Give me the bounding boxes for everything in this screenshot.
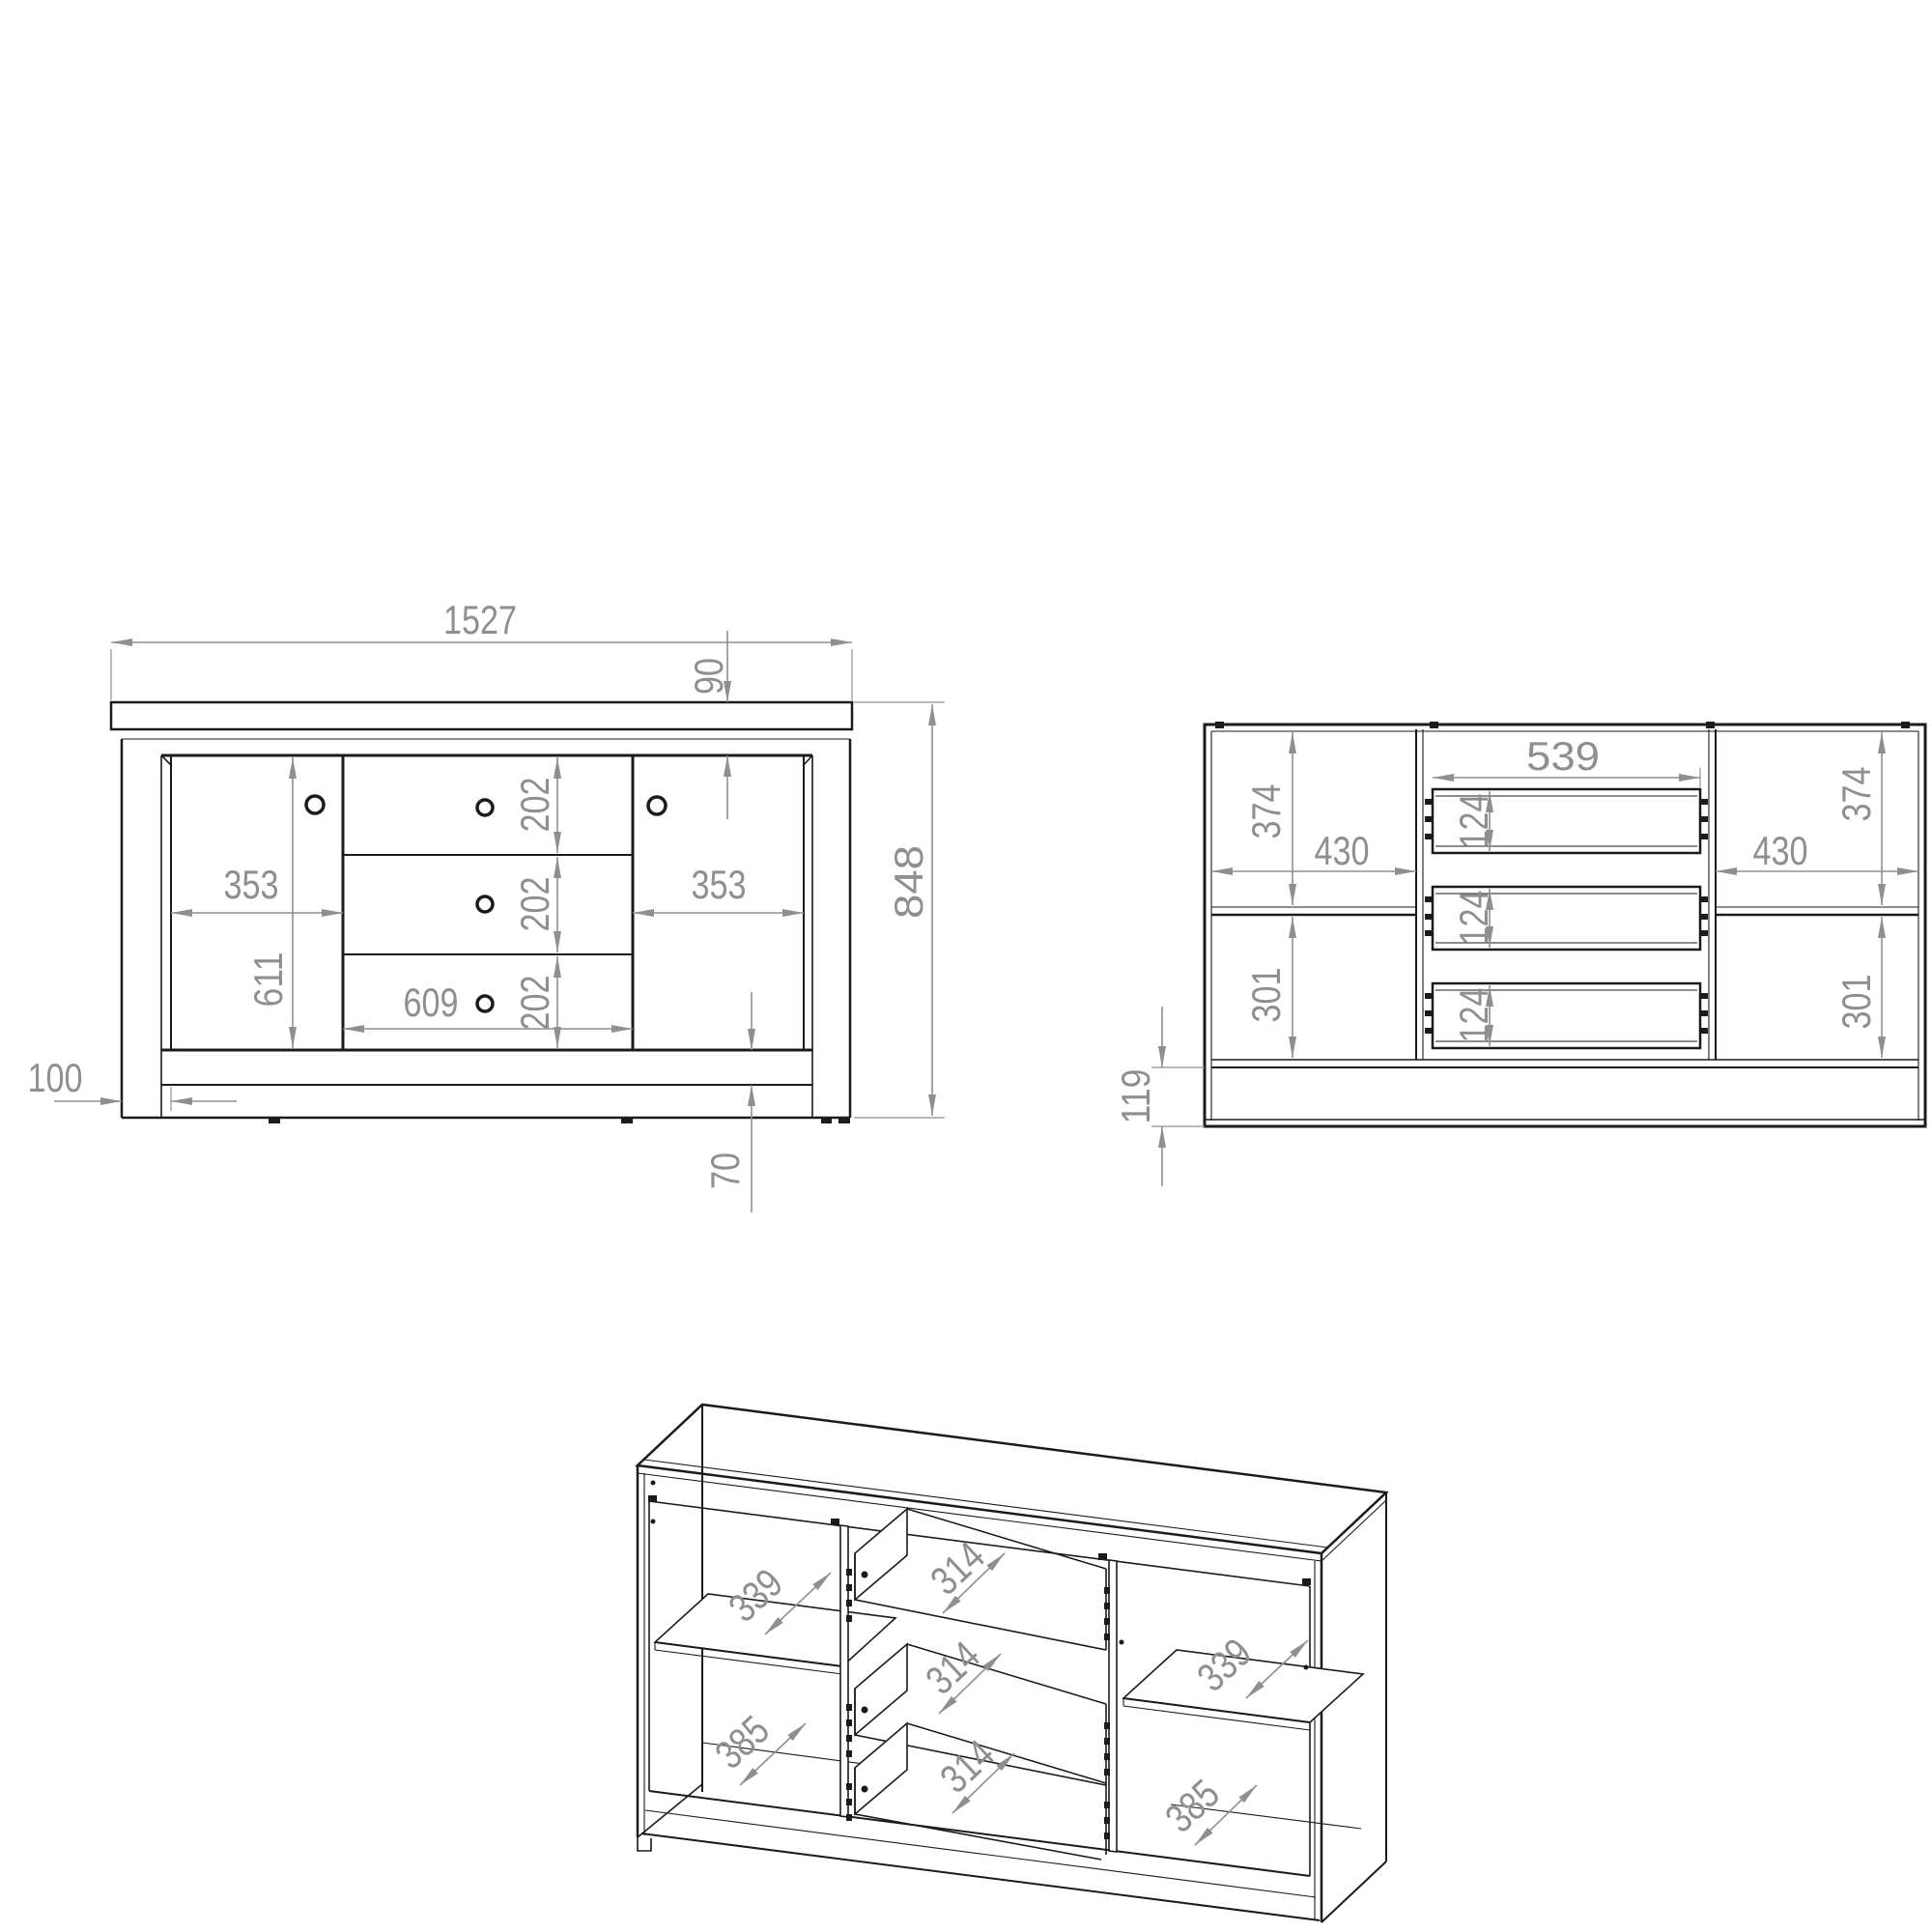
front-knobs — [306, 796, 666, 1011]
iso-plinth-line — [645, 1810, 1316, 1897]
dim-front-door-height: 611 — [245, 952, 291, 1008]
internal-plinth-extensions — [1151, 1067, 1205, 1126]
dim-internal-drawer1-height: 124 — [1451, 794, 1496, 849]
dim-front-drawer2-height: 202 — [512, 877, 557, 932]
right-door-knob — [648, 797, 666, 814]
front-carcass-sides — [122, 739, 850, 1118]
iso-drawer2-dot — [862, 1707, 868, 1714]
front-top-panel — [111, 702, 852, 729]
internal-view: 539 124 124 124 374 430 301 374 430 301 … — [1113, 722, 1925, 1186]
dim-front-drawer1-height: 202 — [512, 778, 557, 833]
drawer1-knob — [477, 800, 493, 815]
front-view: 1527 90 202 202 202 353 353 611 609 848 … — [28, 597, 946, 1212]
dim-front-top-panel: 90 — [686, 658, 731, 695]
dim-internal-drawer3-height: 124 — [1451, 988, 1496, 1043]
dim-iso-drawer2-depth: 314 — [917, 1633, 988, 1703]
dim-iso-right-bottom-depth: 385 — [1156, 1771, 1228, 1841]
dim-front-total-height: 848 — [886, 845, 931, 919]
iso-drawer2-sidewall — [855, 1644, 907, 1735]
iso-drawer1-dot — [862, 1572, 868, 1578]
iso-drawer1-sidewall — [855, 1509, 907, 1600]
dim-internal-plinth-height: 119 — [1113, 1069, 1158, 1124]
dim-front-drawer-width: 609 — [404, 980, 459, 1025]
iso-dimensions: 339 385 314 314 314 339 385 — [706, 1533, 1308, 1845]
drawer3-knob — [477, 996, 493, 1011]
dim-internal-drawer2-height: 124 — [1451, 891, 1496, 946]
dim-front-total-width: 1527 — [443, 597, 517, 642]
dim-front-side-width: 100 — [28, 1055, 83, 1100]
furniture-technical-drawing: 1527 90 202 202 202 353 353 611 609 848 … — [0, 0, 1932, 1932]
dim-iso-left-bottom-depth: 385 — [706, 1707, 778, 1777]
dim-front-left-door-width: 353 — [224, 862, 279, 907]
iso-top-face — [638, 1405, 1386, 1553]
dim-internal-right-bottom-height: 301 — [1833, 975, 1879, 1030]
drawer2-knob — [477, 896, 493, 912]
iso-drawer3-dot — [862, 1786, 868, 1793]
iso-view: 339 385 314 314 314 339 385 — [638, 1405, 1386, 1922]
dim-internal-right-top-height: 374 — [1833, 767, 1879, 822]
dim-front-drawer3-height: 202 — [512, 976, 557, 1031]
dim-internal-right-width: 430 — [1753, 828, 1808, 873]
dim-internal-left-bottom-height: 301 — [1243, 968, 1289, 1023]
dim-iso-drawer3-depth: 314 — [931, 1731, 1003, 1802]
dim-front-right-door-width: 353 — [692, 862, 747, 907]
dim-internal-left-top-height: 374 — [1243, 784, 1289, 839]
dim-front-rail-height: 70 — [702, 1152, 748, 1189]
iso-right-divider — [1109, 1560, 1117, 1852]
dim-internal-opening-width: 539 — [1526, 733, 1600, 779]
iso-front-bottom-edge — [641, 1833, 1320, 1920]
left-door-knob — [306, 796, 324, 813]
dim-internal-left-width: 430 — [1315, 828, 1370, 873]
